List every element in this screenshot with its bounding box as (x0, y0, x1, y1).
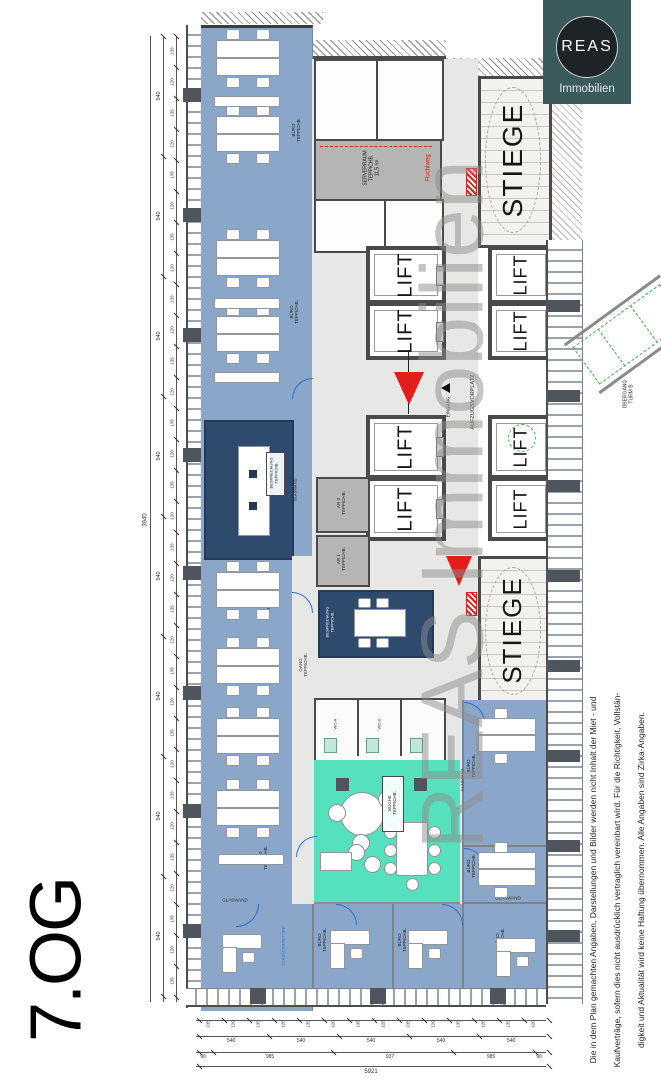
chair (256, 77, 270, 88)
sideboard (218, 854, 284, 865)
chair (256, 353, 270, 364)
dim-small: 120 (169, 946, 174, 954)
facade-pier (183, 88, 201, 102)
chair (256, 561, 270, 572)
dim-small: 135 (169, 791, 174, 799)
dim-segment: 540 (156, 811, 162, 820)
dim-tick (547, 1064, 553, 1070)
glass-partition (312, 904, 314, 988)
dim-line (150, 36, 151, 1002)
facade-pier (546, 570, 580, 582)
wc-fixture (366, 738, 379, 753)
dim-small: 135 (169, 853, 174, 861)
uebergang-line2: TURM B (629, 380, 635, 409)
desk (216, 572, 280, 590)
dim-small: 135 (169, 915, 174, 923)
dim-segment: 540 (156, 451, 162, 460)
buero-floor: TEPPICHB. (296, 118, 301, 142)
chair (384, 862, 397, 875)
chair (256, 229, 270, 240)
dim-line (196, 1036, 546, 1037)
dim-segment: 540 (227, 1038, 235, 1044)
desk (216, 240, 280, 258)
serverraum-area: 11,5 m² (375, 150, 381, 185)
lift-label: LIFT (511, 488, 532, 529)
chair (256, 153, 270, 164)
desk (408, 943, 423, 969)
dim-small: 120 (169, 326, 174, 334)
dim-small: 135 (355, 1020, 360, 1028)
chair (226, 827, 240, 838)
chair (226, 685, 240, 696)
facade-pier (546, 660, 580, 672)
chair (226, 229, 240, 240)
facade-pier (183, 566, 201, 580)
facade-pier (546, 480, 580, 492)
dim-small: 135 (169, 481, 174, 489)
sideboard (214, 96, 280, 107)
floorplan: SERVERRAUM TEPPICHB. 11,5 m² Fluchtweg L… (0, 0, 661, 1080)
dim-small: 135 (205, 1020, 210, 1028)
disclaimer-line-1: Die in dem Plan gemachten Angaben, Darst… (589, 697, 599, 1064)
facade-pier (183, 804, 201, 818)
ar3-floor: TEPPICHB. (341, 491, 346, 515)
chair (256, 827, 270, 838)
desk (478, 869, 536, 886)
facade-pier (250, 988, 266, 1004)
dim-small: 120 (169, 822, 174, 830)
desk (216, 316, 280, 334)
dim-small: 120 (169, 698, 174, 706)
chair (384, 844, 397, 857)
dim-group: 90 (536, 1054, 542, 1060)
chair (406, 878, 419, 891)
bench (320, 852, 352, 871)
desk (222, 947, 237, 973)
chair (226, 707, 240, 718)
serverraum-label: SERVERRAUM TEPPICHB. 11,5 m² (363, 150, 380, 185)
dim-small: 120 (169, 78, 174, 86)
hatch-band-facade (548, 92, 582, 240)
wc-h-label: WC-H (334, 719, 339, 730)
chair (226, 637, 240, 648)
dim-small: 120 (280, 1020, 285, 1028)
room-top-a (314, 59, 378, 141)
dim-tick (547, 1034, 553, 1040)
wc-fixture (324, 738, 337, 753)
chair (376, 598, 389, 608)
wc-d-label: WC-D (378, 719, 383, 730)
chair (494, 887, 508, 898)
lift-label: LIFT (511, 310, 532, 351)
chair (256, 685, 270, 696)
glass-partition (392, 904, 394, 988)
dim-small: 135 (455, 1020, 460, 1028)
desk (216, 736, 280, 754)
dim-segment: 540 (156, 91, 162, 100)
facade-pier (490, 988, 506, 1004)
dim-small: 120 (169, 636, 174, 644)
dim-small: 120 (169, 202, 174, 210)
facade-pier (183, 924, 201, 938)
dim-small: 120 (169, 140, 174, 148)
chair (226, 755, 240, 766)
chair (358, 638, 371, 648)
kueche-label: KÜCHE TEPPICHB. (387, 791, 397, 815)
chair (256, 637, 270, 648)
glaswand-label-1: GLASWAND (294, 479, 299, 502)
dim-small: 120 (169, 884, 174, 892)
dim-small: 135 (169, 47, 174, 55)
desk (216, 334, 280, 352)
chair (256, 755, 270, 766)
facade-pier (546, 840, 580, 852)
dim-small: 135 (405, 1020, 410, 1028)
dim-group: 985 (266, 1054, 274, 1060)
desk (216, 134, 280, 152)
ar1-floor: TEPPICHB. (341, 547, 346, 571)
dim-small: 120 (430, 1020, 435, 1028)
chair (350, 948, 363, 959)
besprechung2-floor: TEPPICHB. (330, 607, 335, 638)
facade-pier (183, 448, 201, 462)
dim-segment: 540 (156, 931, 162, 940)
dim-small: 135 (169, 295, 174, 303)
column (336, 778, 349, 791)
hatch-band-top-left (201, 12, 323, 24)
kueche-floor: TEPPICHB. (392, 791, 397, 815)
chair (242, 952, 255, 963)
dim-segment: 540 (156, 211, 162, 220)
logo-block: REAS Immobilien (543, 0, 631, 104)
chair (428, 948, 441, 959)
dim-small: 120 (169, 512, 174, 520)
dim-small: 135 (255, 1020, 260, 1028)
gang-floor: TEPPICHB. (303, 653, 308, 677)
chair (516, 956, 529, 967)
desk (216, 718, 280, 736)
chair (226, 277, 240, 288)
dim-small: 135 (169, 357, 174, 365)
ar1-label: AR 1 TEPPICHB. (336, 547, 346, 571)
sideboard (214, 298, 280, 309)
buero-floor: TEPPICHB. (402, 928, 407, 952)
glasschiebetuer-label: GLASSCHIEBETÜRE (282, 926, 287, 965)
disclaimer-line-2: Kaufverträge, sofern dies nicht ausdrück… (613, 693, 623, 1068)
dim-line (163, 36, 164, 1002)
floorplan-page: SERVERRAUM TEPPICHB. 11,5 m² Fluchtweg L… (0, 0, 661, 1080)
facade-pier (370, 988, 386, 1004)
bridge-axis-marker (508, 424, 536, 452)
dim-small: 135 (169, 729, 174, 737)
dim-small: 120 (169, 264, 174, 272)
gang-label: GANG TEPPICHB. (298, 653, 308, 677)
desk (216, 258, 280, 276)
dim-group: 985 (487, 1054, 495, 1060)
desk (216, 58, 280, 76)
facade-pier (183, 328, 201, 342)
escape-route-line (320, 146, 432, 147)
chair (226, 609, 240, 620)
facade-pier (546, 750, 580, 762)
desk (216, 666, 280, 684)
dim-group: 90 (200, 1054, 206, 1060)
desk (330, 943, 345, 969)
dim-small: 135 (169, 977, 174, 985)
sideboard (214, 372, 280, 383)
desk (216, 808, 280, 826)
dim-segment: 540 (156, 691, 162, 700)
facade-pier (183, 208, 201, 222)
chair (376, 638, 389, 648)
chair (428, 862, 441, 875)
dim-line (196, 1052, 546, 1053)
dim-small: 135 (169, 171, 174, 179)
desk (216, 648, 280, 666)
logo-circle: REAS (556, 16, 618, 78)
chair (256, 29, 270, 40)
dim-small: 135 (169, 667, 174, 675)
dim-small: 135 (169, 109, 174, 117)
dim-small: 120 (530, 1020, 535, 1028)
chair (328, 804, 346, 822)
desk (216, 590, 280, 608)
dim-small: 120 (330, 1020, 335, 1028)
logo-brand: REAS (561, 38, 613, 56)
glass-partition (462, 904, 464, 988)
desk (496, 951, 511, 977)
chair (226, 153, 240, 164)
chair (226, 77, 240, 88)
dim-small: 135 (169, 605, 174, 613)
chair (256, 277, 270, 288)
buero-label-l2: BÜRO TEPPICHB. (289, 300, 299, 324)
dim-total-left: 3940 (143, 513, 150, 526)
dim-small: 120 (230, 1020, 235, 1028)
logo-subtitle: Immobilien (559, 83, 615, 95)
desk (478, 852, 536, 869)
dim-small: 120 (380, 1020, 385, 1028)
table-inset (249, 470, 257, 478)
disclaimer-line-3: digkeit und Aktualität wird keine Haftun… (637, 712, 647, 1048)
buero-floor: TEPPICHB. (322, 928, 327, 952)
dim-small: 135 (169, 419, 174, 427)
chair (226, 561, 240, 572)
room-top-b (376, 59, 444, 141)
desk (216, 116, 280, 134)
dim-small: 135 (305, 1020, 310, 1028)
uebergang-label: ÜBERGANG TURM B (623, 380, 635, 409)
dim-small: 120 (480, 1020, 485, 1028)
dim-tick (547, 1018, 553, 1024)
chair (226, 353, 240, 364)
besprechung-label: BESPRECHUNG TEPPICHB. (269, 458, 278, 489)
dim-small: 120 (169, 450, 174, 458)
ar3-label: AR 3 TEPPICHB. (336, 491, 346, 515)
dim-total-bottom: 5921 (364, 1069, 377, 1075)
table-inset (249, 502, 257, 510)
dim-segment: 540 (156, 571, 162, 580)
bridge-dashed-outline (573, 284, 661, 385)
buero-label-b2: BÜRO TEPPICHB. (397, 928, 407, 952)
dim-small: 135 (169, 233, 174, 241)
chair (256, 779, 270, 790)
dim-group: 937 (386, 1054, 394, 1060)
chair (358, 598, 371, 608)
dim-small: 120 (169, 574, 174, 582)
dim-small: 120 (169, 388, 174, 396)
chair (226, 779, 240, 790)
hatch-band-top-mid (312, 40, 446, 56)
watermark: REAS Immobilien (401, 160, 502, 850)
dim-line (196, 1066, 546, 1067)
buero-label-b1: BÜRO TEPPICHB. (317, 928, 327, 952)
meeting-table (354, 609, 406, 637)
dim-segment: 540 (437, 1038, 445, 1044)
dim-small: 135 (505, 1020, 510, 1028)
dim-segment: 540 (367, 1038, 375, 1044)
facade-pier (183, 686, 201, 700)
facade-pier (546, 390, 580, 402)
dim-segment: 540 (297, 1038, 305, 1044)
besprechung-floor: TEPPICHB. (274, 458, 279, 489)
chair (256, 707, 270, 718)
buero-label-l1: BÜRO TEPPICHB. (291, 118, 301, 142)
desk (216, 790, 280, 808)
chair (226, 29, 240, 40)
buero-floor: TEPPICHB. (294, 300, 299, 324)
room-anteroom-a (314, 199, 386, 253)
besprechung2-label: BESPRECHUNG TEPPICHB. (325, 607, 334, 638)
dim-segment: 540 (507, 1038, 515, 1044)
floor-title: 7.OG (16, 878, 99, 1042)
dim-small: 135 (169, 543, 174, 551)
dim-segment: 540 (156, 331, 162, 340)
chair (256, 609, 270, 620)
lift-label: LIFT (511, 254, 532, 295)
dim-line (176, 36, 177, 1002)
facade-pier (546, 930, 580, 942)
dim-small: 120 (169, 760, 174, 768)
glaswand-label-3: GLASWAND (222, 898, 248, 903)
dim-tick (547, 1050, 553, 1056)
chair (364, 856, 381, 873)
wc-divider (357, 700, 359, 756)
facade-pier (546, 300, 580, 312)
desk (216, 40, 280, 58)
